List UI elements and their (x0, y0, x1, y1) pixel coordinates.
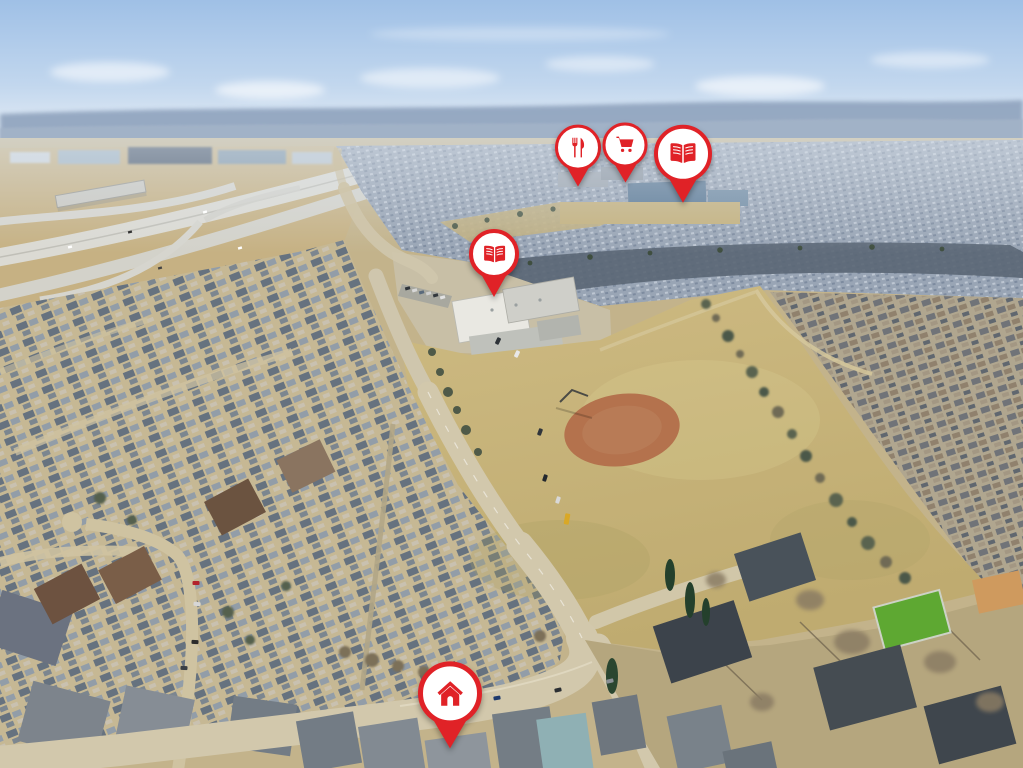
aerial-scene (0, 0, 1023, 768)
red-car (193, 581, 200, 585)
aerial-photo (0, 0, 1023, 768)
haze (0, 138, 1023, 253)
